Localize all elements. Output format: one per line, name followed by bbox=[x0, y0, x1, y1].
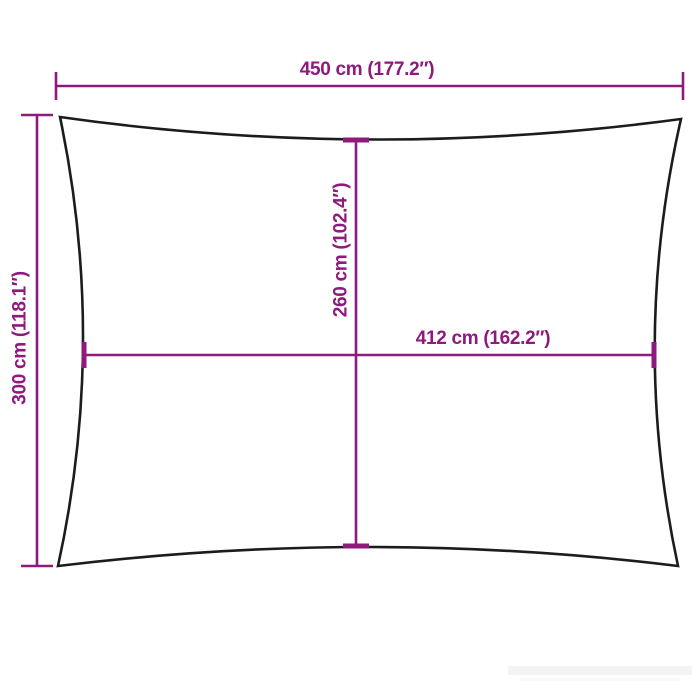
dimension-label-inner-horizontal: 412 cm (162.2″) bbox=[416, 329, 551, 348]
dimension-diagram: 450 cm (177.2″) 300 cm (118.1″) 260 cm (… bbox=[0, 0, 700, 700]
dimension-line-inner-horizontal bbox=[84, 342, 654, 368]
dimension-label-inner-vertical: 260 cm (102.4″) bbox=[332, 183, 351, 318]
dimension-label-top-width: 450 cm (177.2″) bbox=[300, 60, 435, 79]
watermark-bar bbox=[508, 666, 692, 675]
diagram-canvas bbox=[0, 0, 700, 700]
shade-sail-outline bbox=[58, 117, 681, 566]
dimension-label-left-height: 300 cm (118.1″) bbox=[11, 271, 30, 404]
watermark-bar-faint bbox=[520, 677, 680, 681]
